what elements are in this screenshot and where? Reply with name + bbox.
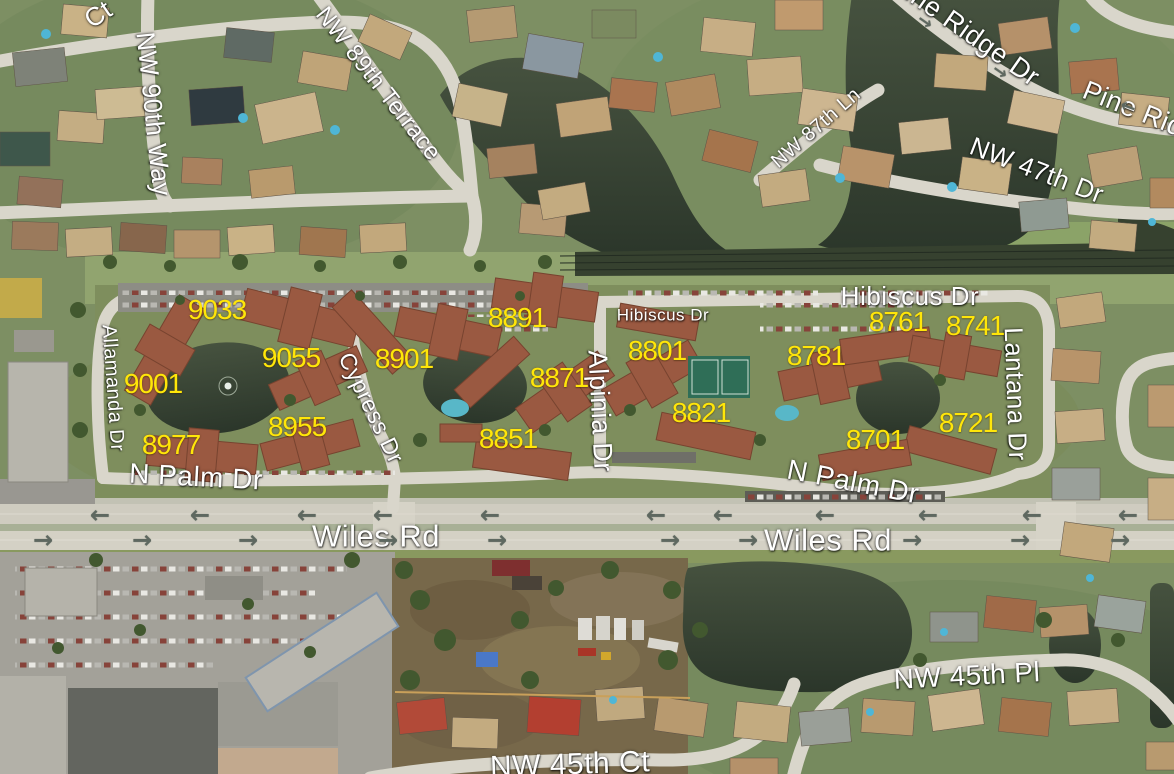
satellite-imagery [0,0,1174,774]
aerial-map[interactable]: Ct NW 90th Way NW 89th Terrace Pine Ridg… [0,0,1174,774]
